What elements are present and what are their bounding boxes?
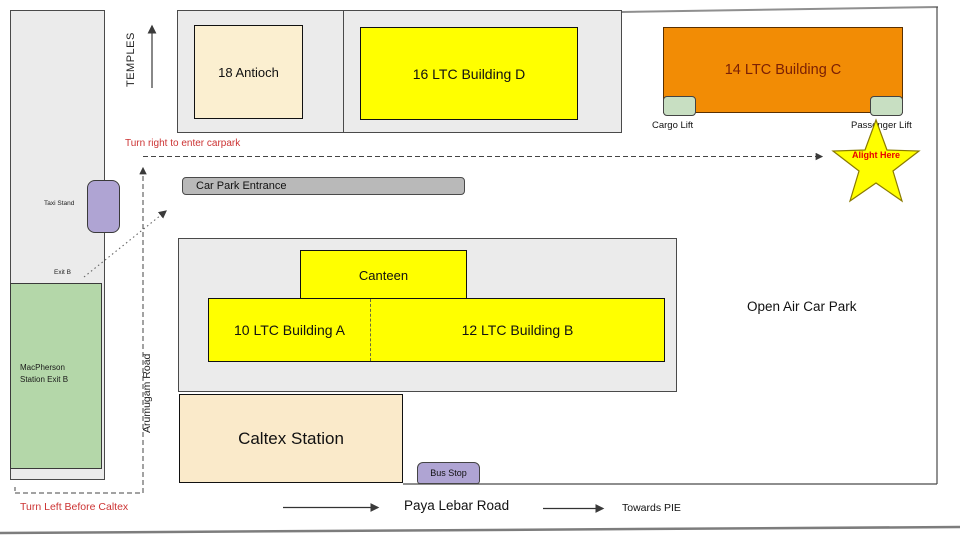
building-14-ltc-c: 14 LTC Building C bbox=[663, 27, 903, 113]
building-16-ltc-d: 16 LTC Building D bbox=[360, 27, 578, 120]
buildings-a-b-box: 10 LTC Building A 12 LTC Building B bbox=[208, 298, 665, 362]
caltex-station-box: Caltex Station bbox=[179, 394, 403, 483]
paya-lebar-road-label: Paya Lebar Road bbox=[404, 498, 509, 513]
turn-right-instruction: Turn right to enter carpark bbox=[125, 138, 240, 149]
macpherson-station-box: MacPherson Station Exit B bbox=[10, 283, 102, 469]
top-buildings-container: 18 Antioch 16 LTC Building D bbox=[177, 10, 622, 133]
building-10-ltc-a: 10 LTC Building A bbox=[209, 299, 371, 361]
open-air-car-park-label: Open Air Car Park bbox=[747, 299, 857, 314]
car-park-entrance-bar: Car Park Entrance bbox=[182, 177, 465, 195]
bottom-road-edge-line bbox=[0, 527, 960, 533]
cargo-lift-label: Cargo Lift bbox=[652, 120, 693, 131]
alight-here-label: Alight Here bbox=[843, 150, 909, 160]
lower-buildings-container: Canteen 10 LTC Building A 12 LTC Buildin… bbox=[178, 238, 677, 392]
taxi-stand-label: Taxi Stand bbox=[44, 200, 74, 207]
macpherson-line2: Station Exit B bbox=[20, 374, 101, 386]
site-map: Taxi Stand Exit B MacPherson Station Exi… bbox=[0, 0, 960, 540]
passenger-lift-label: Passenger Lift bbox=[851, 120, 912, 131]
car-park-entrance-label: Car Park Entrance bbox=[196, 180, 286, 192]
building-18-antioch: 18 Antioch bbox=[194, 25, 303, 119]
taxi-stand-marker bbox=[87, 180, 120, 233]
passenger-lift-marker bbox=[870, 96, 903, 116]
cargo-lift-marker bbox=[663, 96, 696, 116]
exit-b-label: Exit B bbox=[54, 269, 71, 276]
temples-road-label: TEMPLES bbox=[125, 25, 137, 87]
boundary-top-line bbox=[622, 7, 938, 12]
alight-star-icon bbox=[833, 120, 919, 201]
bus-stop-marker: Bus Stop bbox=[417, 462, 480, 484]
turn-left-instruction: Turn Left Before Caltex bbox=[20, 501, 128, 513]
towards-pie-label: Towards PIE bbox=[622, 502, 681, 514]
arumugam-road-label: Arumugam Road bbox=[141, 325, 153, 433]
canteen-box: Canteen bbox=[300, 250, 467, 300]
building-12-ltc-b: 12 LTC Building B bbox=[371, 299, 664, 361]
lot-divider-line bbox=[343, 11, 344, 132]
macpherson-line1: MacPherson bbox=[20, 362, 101, 374]
